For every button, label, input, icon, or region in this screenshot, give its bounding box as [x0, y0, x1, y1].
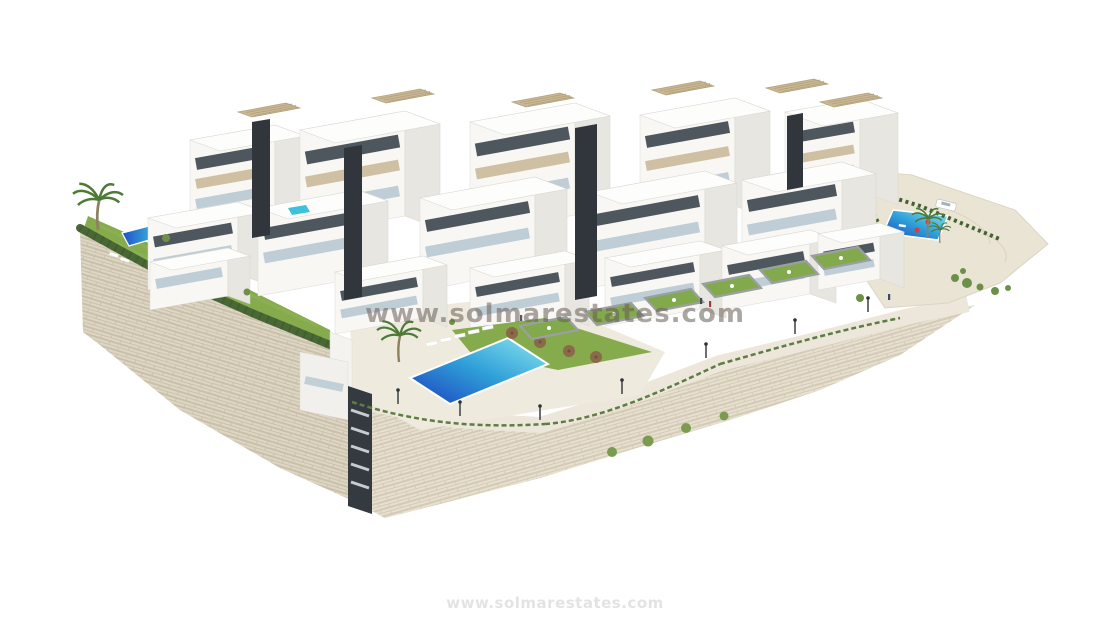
- watermark-center: www.solmarestates.com: [365, 299, 745, 329]
- render-scene: www.solmarestates.com www.solmarestates.…: [0, 0, 1110, 626]
- parasol: [914, 227, 919, 232]
- palm-tree: [73, 184, 123, 230]
- watermark-bottom: www.solmarestates.com: [446, 594, 664, 612]
- property-render-image: www.solmarestates.com www.solmarestates.…: [0, 0, 1110, 626]
